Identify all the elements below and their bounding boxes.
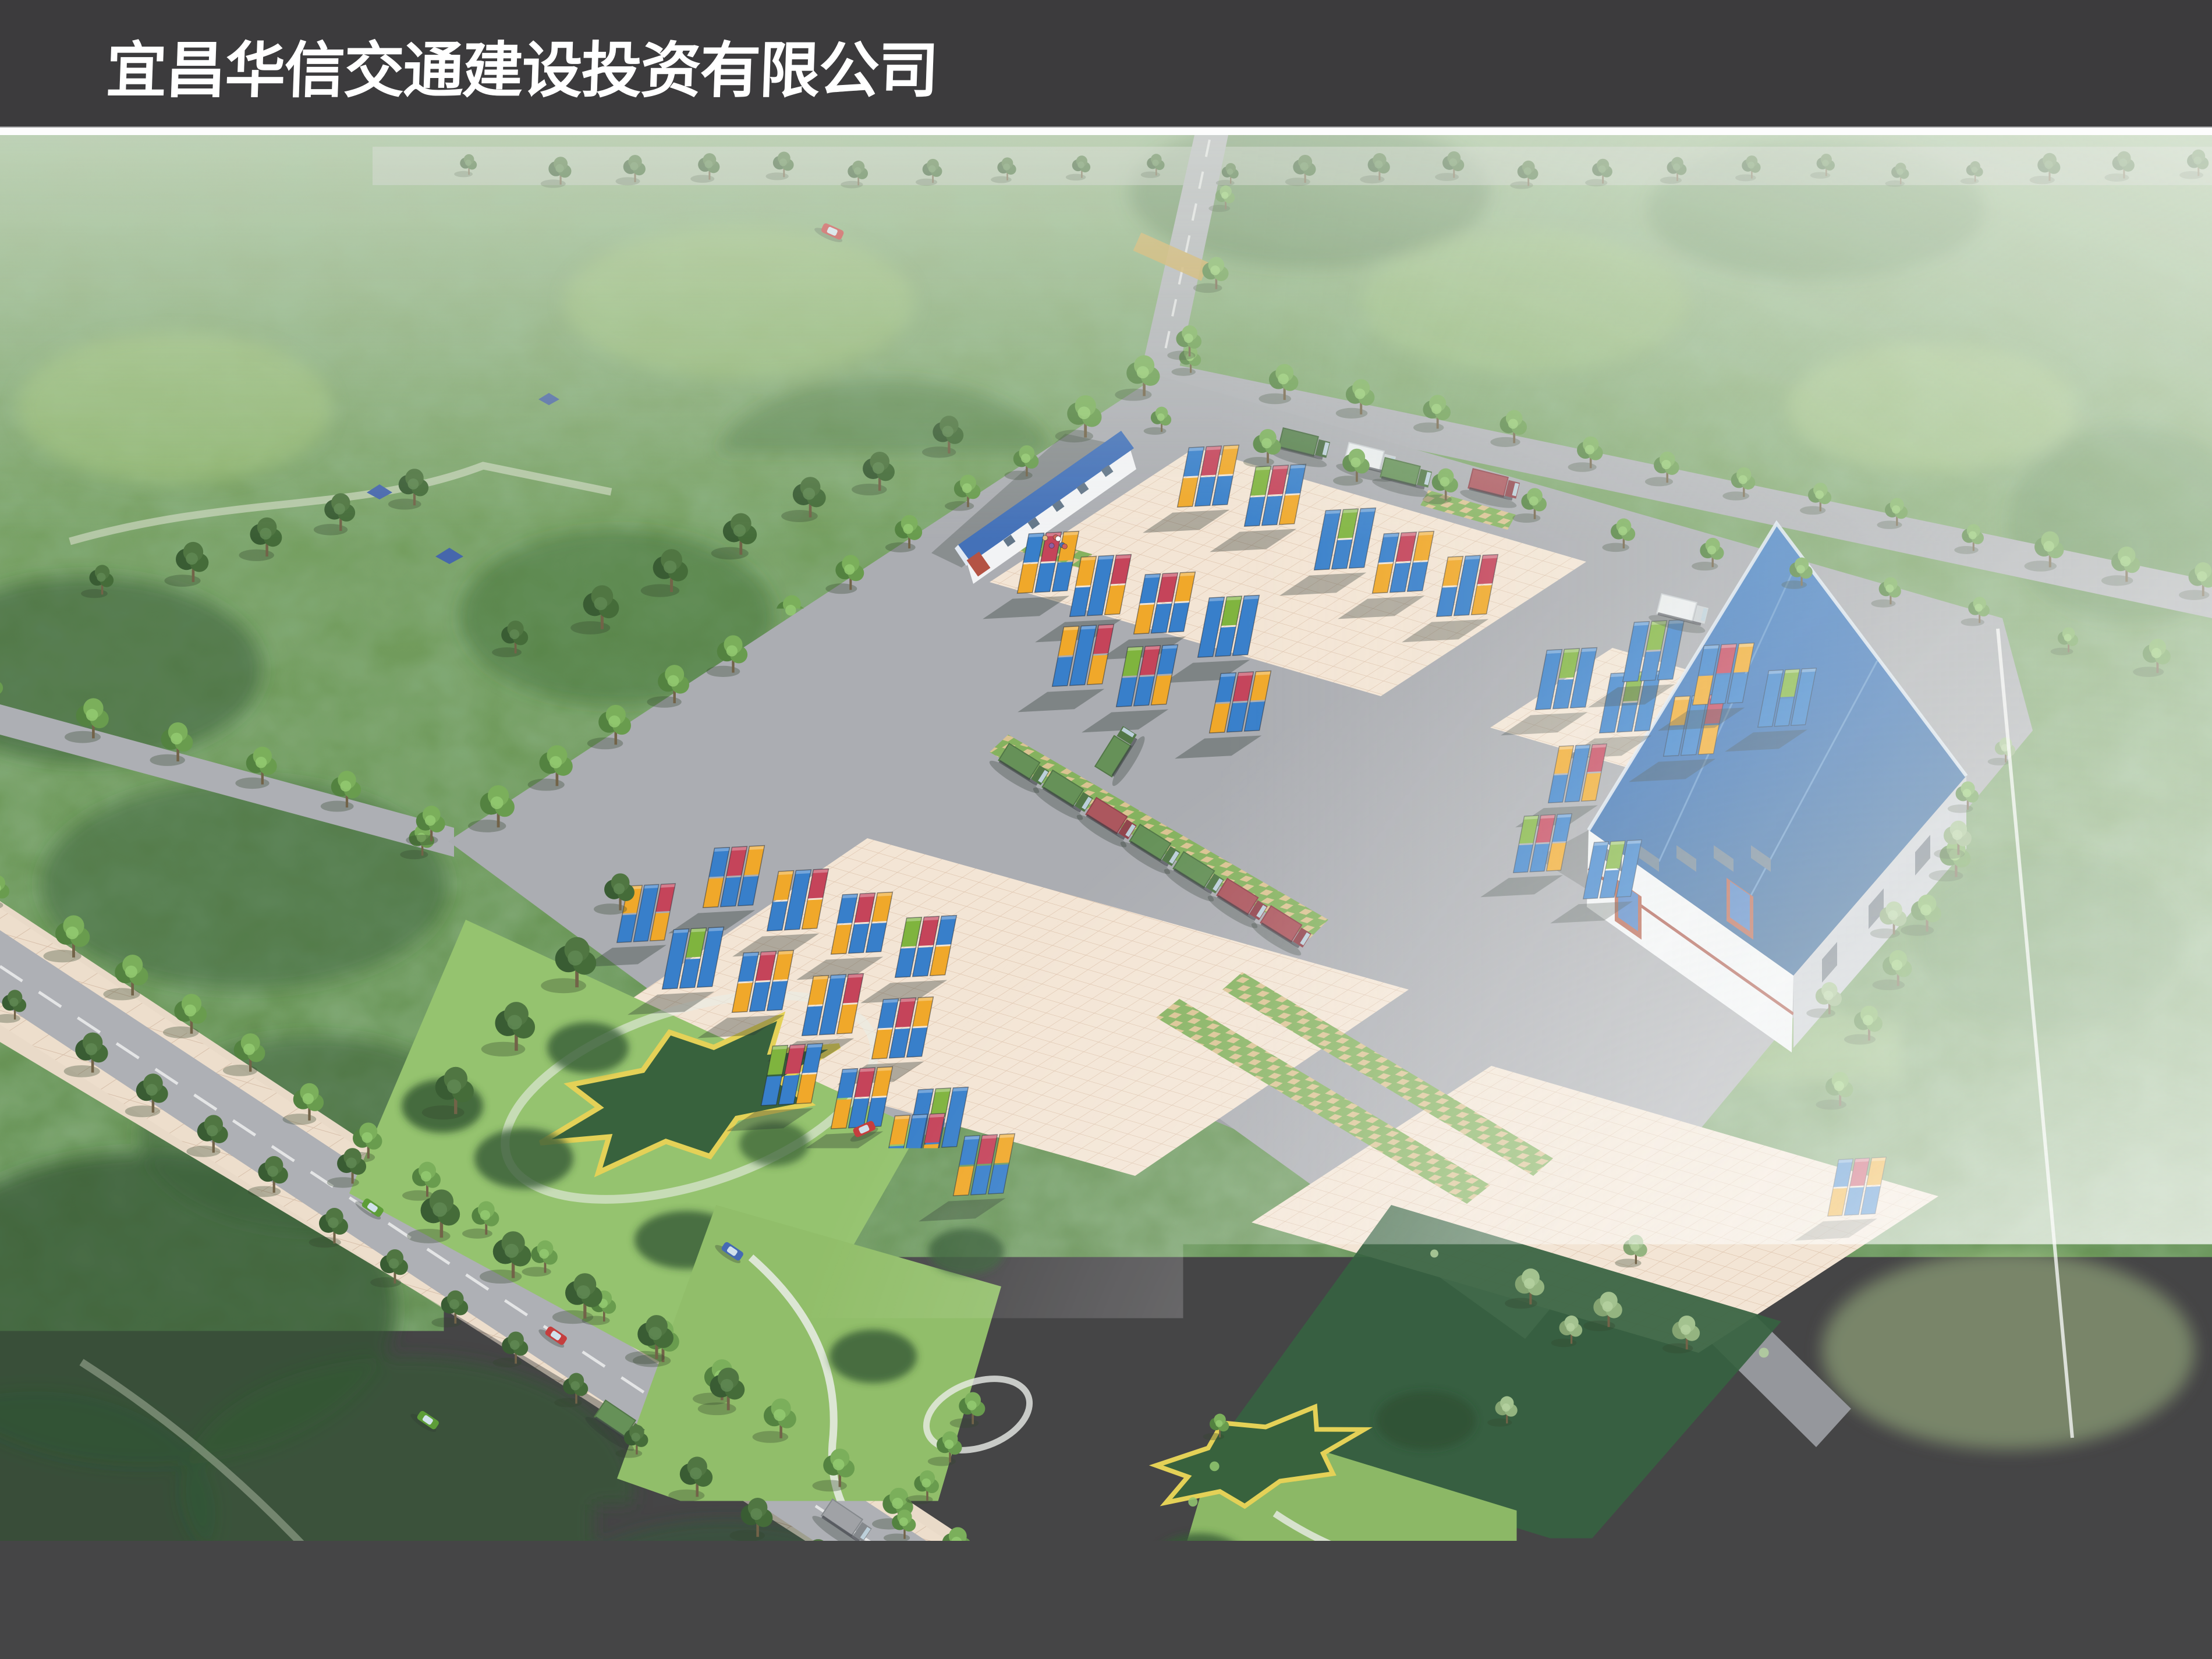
presentation-board: 宜昌华信交通建设投资有限公司 bbox=[0, 0, 2212, 1659]
aerial-rendering bbox=[0, 135, 2212, 1541]
header-bar: 宜昌华信交通建设投资有限公司 bbox=[0, 0, 2212, 126]
footer-bar: 宜昌市货运中心 鸟瞰图 北京东方华太建筑设计工程有限责任公司武汉分公司 BEIJ… bbox=[0, 1550, 2212, 1659]
page-title: 宜昌华信交通建设投资有限公司 bbox=[105, 21, 939, 109]
haze-overlay bbox=[0, 135, 2212, 1541]
